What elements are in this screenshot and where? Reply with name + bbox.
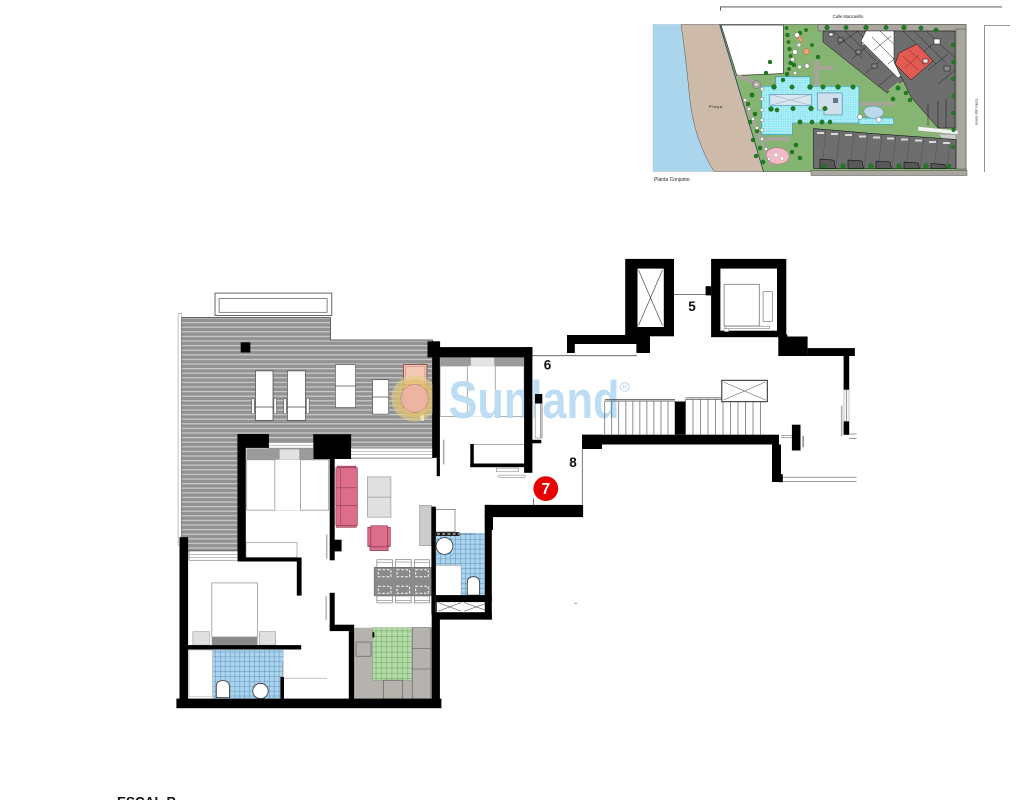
svg-text:8: 8 bbox=[569, 455, 577, 470]
svg-text:Sunland: Sunland bbox=[449, 371, 620, 430]
svg-text:6: 6 bbox=[544, 358, 552, 373]
svg-text:Planta Conjunto: Planta Conjunto bbox=[654, 177, 690, 183]
svg-text:Playa: Playa bbox=[709, 104, 723, 109]
svg-text:7: 7 bbox=[541, 481, 550, 498]
svg-text:Calle Manzanillo: Calle Manzanillo bbox=[833, 14, 864, 19]
svg-text:5: 5 bbox=[688, 299, 696, 314]
svg-text:ESCAL.B: ESCAL.B bbox=[117, 795, 177, 800]
svg-text:R: R bbox=[623, 385, 628, 391]
svg-text:Calle Lago Garda: Calle Lago Garda bbox=[975, 99, 979, 126]
